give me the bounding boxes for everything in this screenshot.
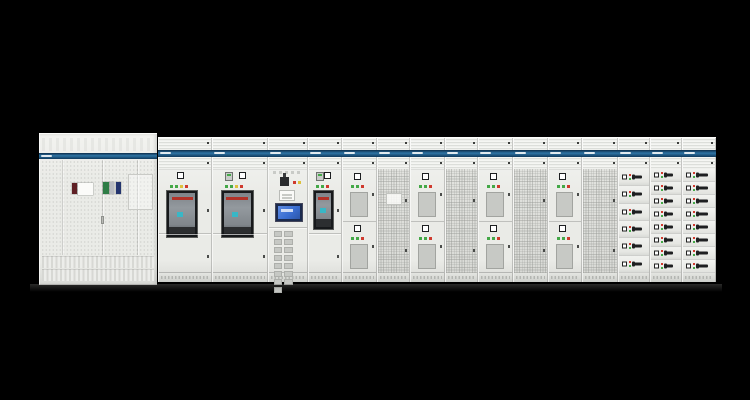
molded-case-breaker-window xyxy=(556,244,573,269)
plinth-vent-dots xyxy=(685,276,713,279)
recorder-meter xyxy=(279,190,295,201)
door-area xyxy=(213,169,267,273)
withdrawable-drawer-unit xyxy=(683,195,715,208)
led-green xyxy=(693,202,695,204)
molded-case-breaker-window xyxy=(418,192,436,217)
module-meter xyxy=(422,173,429,180)
door-latch xyxy=(372,245,374,248)
led-red xyxy=(326,185,329,188)
withdrawable-drawer-unit xyxy=(619,256,649,273)
feeder-module xyxy=(411,169,444,222)
drawer-handle xyxy=(665,200,673,203)
breaker-cyan-label xyxy=(320,208,326,213)
pushbutton xyxy=(324,172,331,179)
band-label-blur xyxy=(447,152,458,154)
plinth-vent-dots xyxy=(215,276,265,279)
led-red xyxy=(361,185,364,188)
green-component xyxy=(103,182,109,194)
plinth-vent-dots xyxy=(161,276,209,279)
cabinet-acb-2 xyxy=(212,137,268,282)
band-label-blur xyxy=(620,152,631,154)
band-label-blur xyxy=(550,152,561,154)
door-split-line xyxy=(269,227,307,228)
led-red xyxy=(693,263,695,265)
band-label-blur xyxy=(684,152,695,154)
top-dot-rows xyxy=(42,138,154,151)
indicator-led-row xyxy=(225,184,245,188)
led-red xyxy=(629,209,631,211)
door-latch xyxy=(543,249,545,252)
door-area xyxy=(583,169,617,273)
plinth-vent-dots xyxy=(621,276,647,279)
pushbutton xyxy=(177,172,184,179)
drawer-indicator-window xyxy=(654,212,659,217)
corner-screw xyxy=(372,142,374,144)
corner-screw xyxy=(263,142,265,144)
brand-band xyxy=(342,150,377,157)
feeder-module xyxy=(549,221,581,273)
drawer-handle xyxy=(633,210,642,213)
door-area xyxy=(411,169,444,273)
led-green xyxy=(351,237,354,240)
led-green xyxy=(487,237,490,240)
plinth xyxy=(683,272,715,282)
feeder-module xyxy=(343,169,376,222)
drawer-indicator-window xyxy=(654,251,659,256)
plinth-vent-dots xyxy=(345,276,374,279)
withdrawable-drawer-unit xyxy=(683,247,715,260)
led-green xyxy=(225,185,228,188)
corner-screw xyxy=(508,142,510,144)
filter-label xyxy=(386,193,402,205)
band-label-blur xyxy=(480,152,491,154)
corner-screw xyxy=(405,162,407,164)
breaker-cyan-label xyxy=(232,212,238,217)
terminal-block xyxy=(284,263,293,269)
drawer-handle xyxy=(697,200,708,203)
drawer-indicator-window xyxy=(686,199,691,204)
brand-band xyxy=(377,150,410,157)
door-area xyxy=(651,169,681,273)
led-red xyxy=(693,250,695,252)
cabinet-feeder-2 xyxy=(410,137,445,282)
led-green xyxy=(321,185,324,188)
corner-screw xyxy=(645,142,647,144)
module-meter xyxy=(490,173,497,180)
cabinet-feeder-3 xyxy=(478,137,513,282)
corner-screw xyxy=(711,162,713,164)
drawer-handle xyxy=(633,176,642,179)
led-red xyxy=(661,237,663,239)
band-label-blur xyxy=(214,152,225,154)
plinth xyxy=(378,272,409,282)
door-area xyxy=(549,169,581,273)
cabinet-drawers-b xyxy=(650,137,682,282)
meter-display xyxy=(318,174,322,176)
withdrawable-drawer-unit xyxy=(683,234,715,247)
door-latch xyxy=(577,193,579,196)
brand-band xyxy=(39,153,157,159)
corner-screw xyxy=(613,162,615,164)
molded-case-breaker-window xyxy=(350,244,368,269)
corner-screw xyxy=(337,162,339,164)
indicator-led-row xyxy=(351,236,366,240)
door-latch xyxy=(440,193,442,196)
band-label-blur xyxy=(515,152,526,154)
indicator-led-row xyxy=(293,180,303,184)
led-red xyxy=(693,185,695,187)
led-red xyxy=(693,172,695,174)
withdrawable-drawer-unit xyxy=(683,169,715,182)
plinth xyxy=(411,272,444,282)
plinth xyxy=(514,272,547,282)
module-meter xyxy=(354,225,361,232)
power-meter xyxy=(225,172,233,181)
molded-case-breaker-window xyxy=(556,192,573,217)
withdrawable-drawer-unit xyxy=(683,182,715,195)
led-green xyxy=(629,247,631,249)
terminal-label-row xyxy=(273,171,303,174)
drawer-handle xyxy=(665,239,673,242)
brand-band xyxy=(268,150,308,157)
module-meter xyxy=(490,225,497,232)
brand-band xyxy=(548,150,582,157)
cabinet-mesh-2 xyxy=(445,137,478,282)
corner-screw xyxy=(677,162,679,164)
plinth-vent-dots xyxy=(481,276,510,279)
drawer-indicator-window xyxy=(686,251,691,256)
cabinet-mesh-1 xyxy=(377,137,410,282)
led-red xyxy=(661,224,663,226)
recorder-lines xyxy=(282,194,292,196)
led-red xyxy=(361,237,364,240)
plinth-vent-dots xyxy=(380,276,407,279)
drawer-indicator-window xyxy=(654,264,659,269)
withdrawable-drawer-unit xyxy=(651,234,681,247)
corner-screw xyxy=(508,162,510,164)
led-green xyxy=(351,185,354,188)
led-red xyxy=(240,185,243,188)
control-switch xyxy=(280,177,289,186)
cabinet-drawers-a xyxy=(618,137,650,282)
led-green xyxy=(356,237,359,240)
pushbutton xyxy=(239,172,246,179)
plinth xyxy=(159,272,211,282)
feeder-module xyxy=(479,221,512,273)
feeder-module xyxy=(479,169,512,222)
terminal-block xyxy=(274,247,283,253)
door-latch xyxy=(263,255,265,258)
drawer-handle xyxy=(665,265,673,268)
led-red xyxy=(661,185,663,187)
led-green xyxy=(487,185,490,188)
mesh-ventilated-door xyxy=(514,169,547,273)
drawer-indicator-window xyxy=(654,238,659,243)
plinth xyxy=(446,272,477,282)
drawer-indicator-window xyxy=(654,173,659,178)
drawer-handle xyxy=(697,239,708,242)
drawer-handle xyxy=(697,187,708,190)
door-latch xyxy=(263,209,265,212)
left-distribution-cabinet xyxy=(39,133,157,285)
switchgear-row xyxy=(158,137,716,281)
white-label xyxy=(78,183,93,195)
corner-screw xyxy=(372,162,374,164)
brand-band xyxy=(410,150,445,157)
led-red xyxy=(293,181,296,184)
drawer-handle xyxy=(633,228,642,231)
terminal-block xyxy=(274,263,283,269)
led-red xyxy=(661,211,663,213)
door-split-line xyxy=(159,233,211,234)
led-green xyxy=(424,237,427,240)
led-green xyxy=(629,213,631,215)
meter-display xyxy=(227,174,231,176)
corner-screw xyxy=(677,142,679,144)
led-green xyxy=(693,254,695,256)
terminal-block xyxy=(274,271,283,277)
led-green xyxy=(316,185,319,188)
led-green xyxy=(629,178,631,180)
scene xyxy=(0,0,750,400)
door-latch xyxy=(508,245,510,248)
indicator-led-row xyxy=(557,236,572,240)
cabinet-mesh-3 xyxy=(513,137,548,282)
led-red xyxy=(661,250,663,252)
door-area xyxy=(343,169,376,273)
door-latch xyxy=(473,249,475,252)
band-label-blur xyxy=(310,152,321,154)
corner-screw xyxy=(613,142,615,144)
led-green xyxy=(661,254,663,256)
mesh-ventilated-door xyxy=(378,169,409,273)
brand-band xyxy=(445,150,478,157)
door-split-line xyxy=(309,233,341,234)
corner-screw xyxy=(473,162,475,164)
corner-screw xyxy=(303,142,305,144)
terminal-block xyxy=(284,239,293,245)
led-red xyxy=(629,226,631,228)
led-red xyxy=(629,243,631,245)
led-red xyxy=(429,185,432,188)
air-circuit-breaker-window xyxy=(222,191,253,237)
brand-band xyxy=(618,150,650,157)
drawer-indicator-window xyxy=(686,225,691,230)
cabinet-acb-3 xyxy=(308,137,342,282)
module-meter xyxy=(559,173,566,180)
cabinet-acb-1 xyxy=(158,137,212,282)
molded-case-breaker-window xyxy=(486,192,504,217)
feeder-module xyxy=(411,221,444,273)
led-green xyxy=(693,228,695,230)
door-latch xyxy=(405,199,407,202)
led-green xyxy=(661,241,663,243)
led-red xyxy=(567,237,570,240)
door-latch xyxy=(372,193,374,196)
door-area xyxy=(269,169,307,273)
led-red xyxy=(497,237,500,240)
corner-screw xyxy=(711,142,713,144)
brand-band xyxy=(682,150,716,157)
drawer-handle xyxy=(665,226,673,229)
led-red xyxy=(567,185,570,188)
plinth xyxy=(583,272,617,282)
mesh-ventilated-door xyxy=(446,169,477,273)
door-area xyxy=(514,169,547,273)
led-green xyxy=(693,215,695,217)
door-area xyxy=(479,169,512,273)
drawer-handle xyxy=(697,213,708,216)
drawer-handle xyxy=(665,174,673,177)
withdrawable-drawer-unit xyxy=(619,204,649,221)
molded-case-breaker-window xyxy=(418,244,436,269)
door-split-line xyxy=(213,233,267,234)
door-area xyxy=(619,169,649,273)
withdrawable-drawer-unit xyxy=(683,260,715,273)
led-red xyxy=(693,211,695,213)
terminal-block xyxy=(284,255,293,261)
led-red xyxy=(185,185,188,188)
air-circuit-breaker-window xyxy=(167,191,197,237)
maroon-component xyxy=(72,183,77,194)
corner-screw xyxy=(440,162,442,164)
cabinet-feeder-1 xyxy=(342,137,377,282)
led-red xyxy=(629,261,631,263)
door-latch xyxy=(440,245,442,248)
withdrawable-drawer-unit xyxy=(651,221,681,234)
withdrawable-drawer-unit xyxy=(651,247,681,260)
door-latch xyxy=(543,199,545,202)
door-latch xyxy=(207,209,209,212)
led-red xyxy=(429,237,432,240)
led-green xyxy=(661,176,663,178)
drawer-handle xyxy=(633,193,642,196)
hmi-screen xyxy=(278,206,300,219)
door-seam xyxy=(62,160,63,255)
plinth-vent-dots xyxy=(551,276,579,279)
indicator-led-row xyxy=(351,184,366,188)
led-green xyxy=(170,185,173,188)
led-green xyxy=(629,265,631,267)
door-latch xyxy=(337,255,339,258)
drawer-handle xyxy=(665,213,673,216)
led-green xyxy=(661,189,663,191)
door-latch xyxy=(613,199,615,202)
led-green xyxy=(562,237,565,240)
band-label-blur xyxy=(584,152,595,154)
led-red xyxy=(497,185,500,188)
door-latch xyxy=(473,199,475,202)
brand-band xyxy=(212,150,268,157)
led-green xyxy=(175,185,178,188)
withdrawable-drawer-unit xyxy=(651,169,681,182)
plinth xyxy=(343,272,376,282)
indicator-led-row xyxy=(170,184,190,188)
drawer-handle xyxy=(665,252,673,255)
band-label-blur xyxy=(412,152,423,154)
corner-screw xyxy=(207,142,209,144)
withdrawable-drawer-unit xyxy=(651,260,681,273)
indicator-led-row xyxy=(487,184,502,188)
band-label-blur xyxy=(652,152,663,154)
air-circuit-breaker-window xyxy=(314,191,333,229)
molded-case-breaker-window xyxy=(486,244,504,269)
corner-screw xyxy=(577,162,579,164)
plinth-vent-dots xyxy=(516,276,545,279)
led-green xyxy=(693,241,695,243)
plinth-vent-dots xyxy=(311,276,339,279)
band-label-blur xyxy=(160,152,171,154)
breaker-base xyxy=(316,219,331,227)
led-green xyxy=(661,267,663,269)
drawer-indicator-window xyxy=(622,209,627,214)
terminal-block xyxy=(284,271,293,277)
cabinet-control-hmi xyxy=(268,137,308,282)
led-green xyxy=(629,230,631,232)
drawer-handle xyxy=(633,262,642,265)
drawer-indicator-window xyxy=(622,244,627,249)
led-red xyxy=(629,174,631,176)
cabinet-drawers-c xyxy=(682,137,716,282)
door-latch xyxy=(508,193,510,196)
corner-screw xyxy=(543,162,545,164)
led-green xyxy=(661,202,663,204)
withdrawable-drawer-unit xyxy=(619,221,649,238)
terminal-block xyxy=(274,239,283,245)
brand-band xyxy=(158,150,212,157)
plinth-vent-dots xyxy=(585,276,615,279)
feeder-module xyxy=(549,169,581,222)
band-label-blur xyxy=(41,155,52,157)
led-yellow xyxy=(180,185,183,188)
door-area xyxy=(683,169,715,273)
door-area xyxy=(309,169,341,273)
corner-screw xyxy=(405,142,407,144)
led-red xyxy=(661,198,663,200)
air-circuit-breaker xyxy=(224,193,251,235)
floor-shadow xyxy=(30,284,722,292)
drawer-handle xyxy=(697,265,708,268)
corner-screw xyxy=(440,142,442,144)
power-meter xyxy=(316,172,324,181)
door-latch xyxy=(337,209,339,212)
brand-band xyxy=(650,150,682,157)
door-area xyxy=(446,169,477,273)
grey-component xyxy=(110,182,114,194)
drawer-indicator-window xyxy=(654,225,659,230)
led-green xyxy=(693,176,695,178)
module-meter xyxy=(422,225,429,232)
corner-screw xyxy=(473,142,475,144)
brand-band xyxy=(513,150,548,157)
led-red xyxy=(693,224,695,226)
drawer-indicator-window xyxy=(686,212,691,217)
corner-screw xyxy=(263,162,265,164)
plinth xyxy=(213,272,267,282)
corner-screw xyxy=(645,162,647,164)
withdrawable-drawer-unit xyxy=(619,186,649,203)
door-latch xyxy=(577,245,579,248)
door-latch xyxy=(613,249,615,252)
plinth xyxy=(309,272,341,282)
led-red xyxy=(693,198,695,200)
drawer-handle xyxy=(697,226,708,229)
led-green xyxy=(419,185,422,188)
plinth-vent-dots xyxy=(448,276,475,279)
band-label-blur xyxy=(270,152,281,154)
led-green xyxy=(557,185,560,188)
terminal-block xyxy=(284,247,293,253)
